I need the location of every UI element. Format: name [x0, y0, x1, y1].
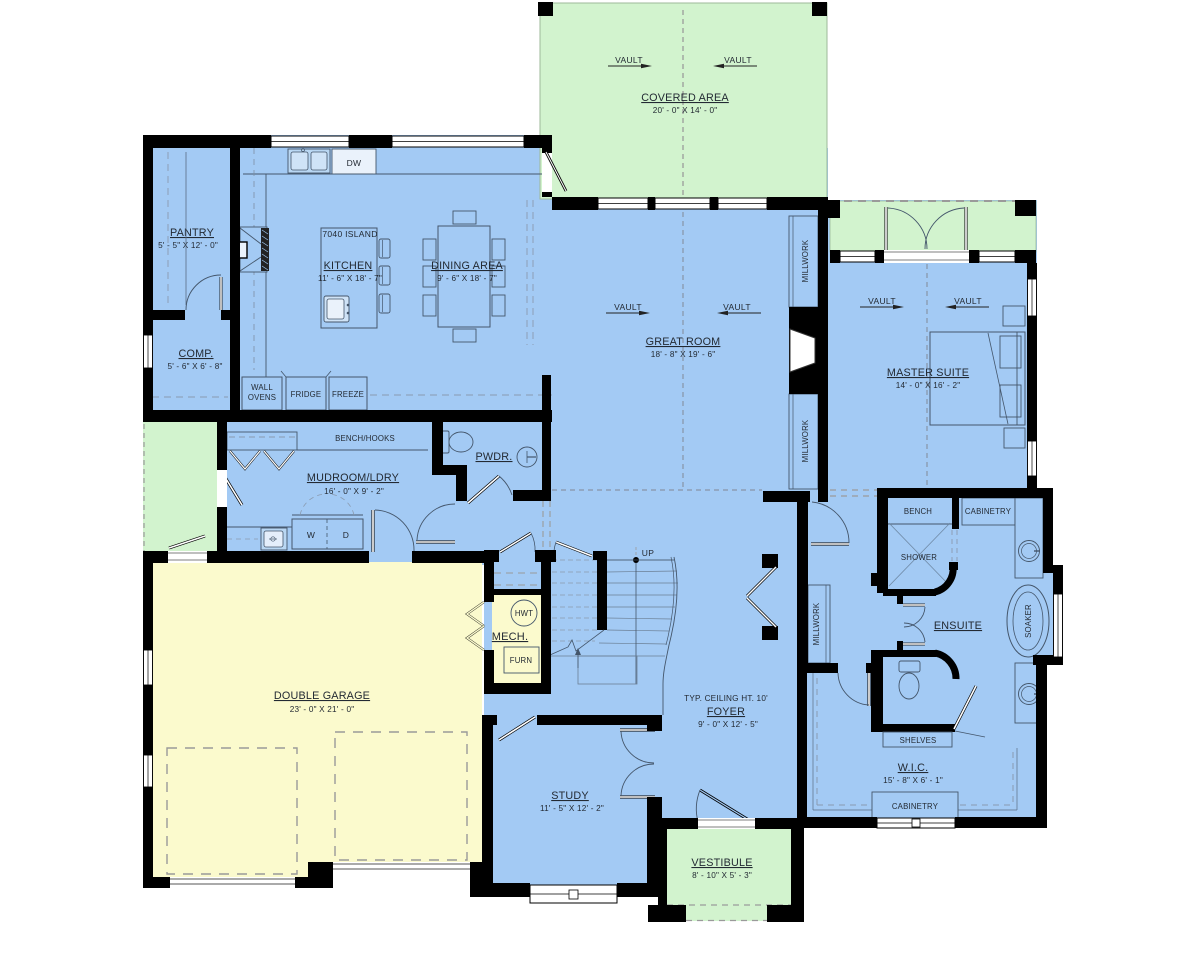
svg-text:CABINETRY: CABINETRY: [965, 507, 1012, 516]
svg-text:VAULT: VAULT: [614, 302, 642, 312]
svg-text:14' - 0" X 16' - 2": 14' - 0" X 16' - 2": [896, 381, 961, 390]
svg-text:MASTER SUITE: MASTER SUITE: [887, 367, 969, 379]
svg-text:SOAKER: SOAKER: [1024, 604, 1033, 638]
svg-text:TYP. CEILING HT. 10': TYP. CEILING HT. 10': [684, 694, 768, 703]
svg-text:MILLWORK: MILLWORK: [801, 239, 810, 282]
svg-text:W.I.C.: W.I.C.: [898, 762, 929, 774]
svg-text:COMP.: COMP.: [179, 348, 214, 360]
svg-text:DINING AREA: DINING AREA: [431, 260, 503, 272]
svg-text:VAULT: VAULT: [724, 55, 752, 65]
svg-text:FOYER: FOYER: [707, 706, 745, 718]
svg-text:DW: DW: [347, 158, 362, 168]
svg-text:9' - 6" X 18' - 7": 9' - 6" X 18' - 7": [437, 274, 497, 283]
svg-text:SHELVES: SHELVES: [900, 736, 937, 745]
svg-text:PWDR.: PWDR.: [476, 451, 513, 463]
svg-text:23' - 0" X 21' - 0": 23' - 0" X 21' - 0": [290, 705, 355, 714]
svg-text:SHOWER: SHOWER: [901, 553, 937, 562]
svg-text:ENSUITE: ENSUITE: [934, 620, 982, 632]
svg-text:VAULT: VAULT: [868, 296, 896, 306]
svg-text:MILLWORK: MILLWORK: [801, 419, 810, 462]
svg-text:18' - 8" X 19' - 6": 18' - 8" X 19' - 6": [651, 350, 716, 359]
svg-text:D: D: [343, 530, 349, 540]
svg-text:20' - 0" X 14' - 0": 20' - 0" X 14' - 0": [653, 106, 718, 115]
svg-text:BENCH/HOOKS: BENCH/HOOKS: [335, 434, 395, 443]
svg-text:MUDROOM/LDRY: MUDROOM/LDRY: [307, 472, 399, 484]
svg-text:MECH.: MECH.: [492, 631, 528, 643]
svg-text:OVENS: OVENS: [248, 393, 276, 402]
svg-text:FRIDGE: FRIDGE: [291, 390, 322, 399]
svg-text:8' - 10" X 5' - 3": 8' - 10" X 5' - 3": [692, 871, 752, 880]
svg-text:CABINETRY: CABINETRY: [892, 802, 939, 811]
svg-text:KITCHEN: KITCHEN: [324, 260, 373, 272]
svg-text:HWT: HWT: [515, 609, 533, 618]
svg-text:VAULT: VAULT: [954, 296, 982, 306]
svg-text:15' - 8" X 6' - 1": 15' - 8" X 6' - 1": [883, 776, 943, 785]
svg-text:COVERED AREA: COVERED AREA: [641, 92, 729, 104]
svg-text:VESTIBULE: VESTIBULE: [691, 857, 752, 869]
svg-text:W: W: [307, 530, 315, 540]
svg-text:5' - 6" X 6' - 8": 5' - 6" X 6' - 8": [167, 362, 222, 371]
svg-text:WALL: WALL: [251, 383, 273, 392]
svg-text:7040 ISLAND: 7040 ISLAND: [322, 229, 377, 239]
svg-text:11' - 5" X 12' - 2": 11' - 5" X 12' - 2": [540, 804, 604, 813]
svg-text:MILLWORK: MILLWORK: [812, 602, 821, 645]
svg-text:11' - 6" X 18' - 7": 11' - 6" X 18' - 7": [318, 274, 382, 283]
svg-text:FURN: FURN: [510, 656, 532, 665]
svg-text:VAULT: VAULT: [723, 302, 751, 312]
svg-text:STUDY: STUDY: [551, 790, 589, 802]
svg-text:5' - 5" X 12' - 0": 5' - 5" X 12' - 0": [158, 241, 218, 250]
svg-text:PANTRY: PANTRY: [170, 227, 214, 239]
svg-text:UP: UP: [642, 548, 654, 558]
svg-text:FREEZE: FREEZE: [332, 390, 364, 399]
svg-text:DOUBLE GARAGE: DOUBLE GARAGE: [274, 690, 370, 702]
svg-text:VAULT: VAULT: [615, 55, 643, 65]
svg-text:BENCH: BENCH: [904, 507, 932, 516]
svg-text:GREAT ROOM: GREAT ROOM: [646, 336, 721, 348]
svg-text:9' - 0" X 12' - 5": 9' - 0" X 12' - 5": [698, 720, 758, 729]
